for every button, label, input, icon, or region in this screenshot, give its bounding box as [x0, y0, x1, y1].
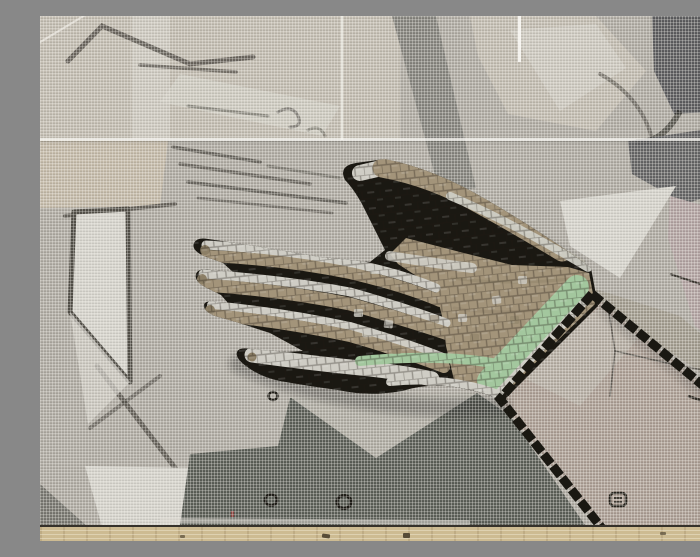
- wood-knot-mark: [180, 535, 185, 538]
- wood-knot-mark: [322, 533, 330, 538]
- wood-knot-mark: [403, 533, 410, 538]
- mosaic-hand: [40, 16, 700, 541]
- mosaic-photo: Close-up photograph of an unfinished mos…: [40, 16, 700, 541]
- tile-shine-texture: [180, 146, 610, 416]
- wood-frame: [40, 525, 700, 541]
- wood-knot-mark: [660, 532, 666, 535]
